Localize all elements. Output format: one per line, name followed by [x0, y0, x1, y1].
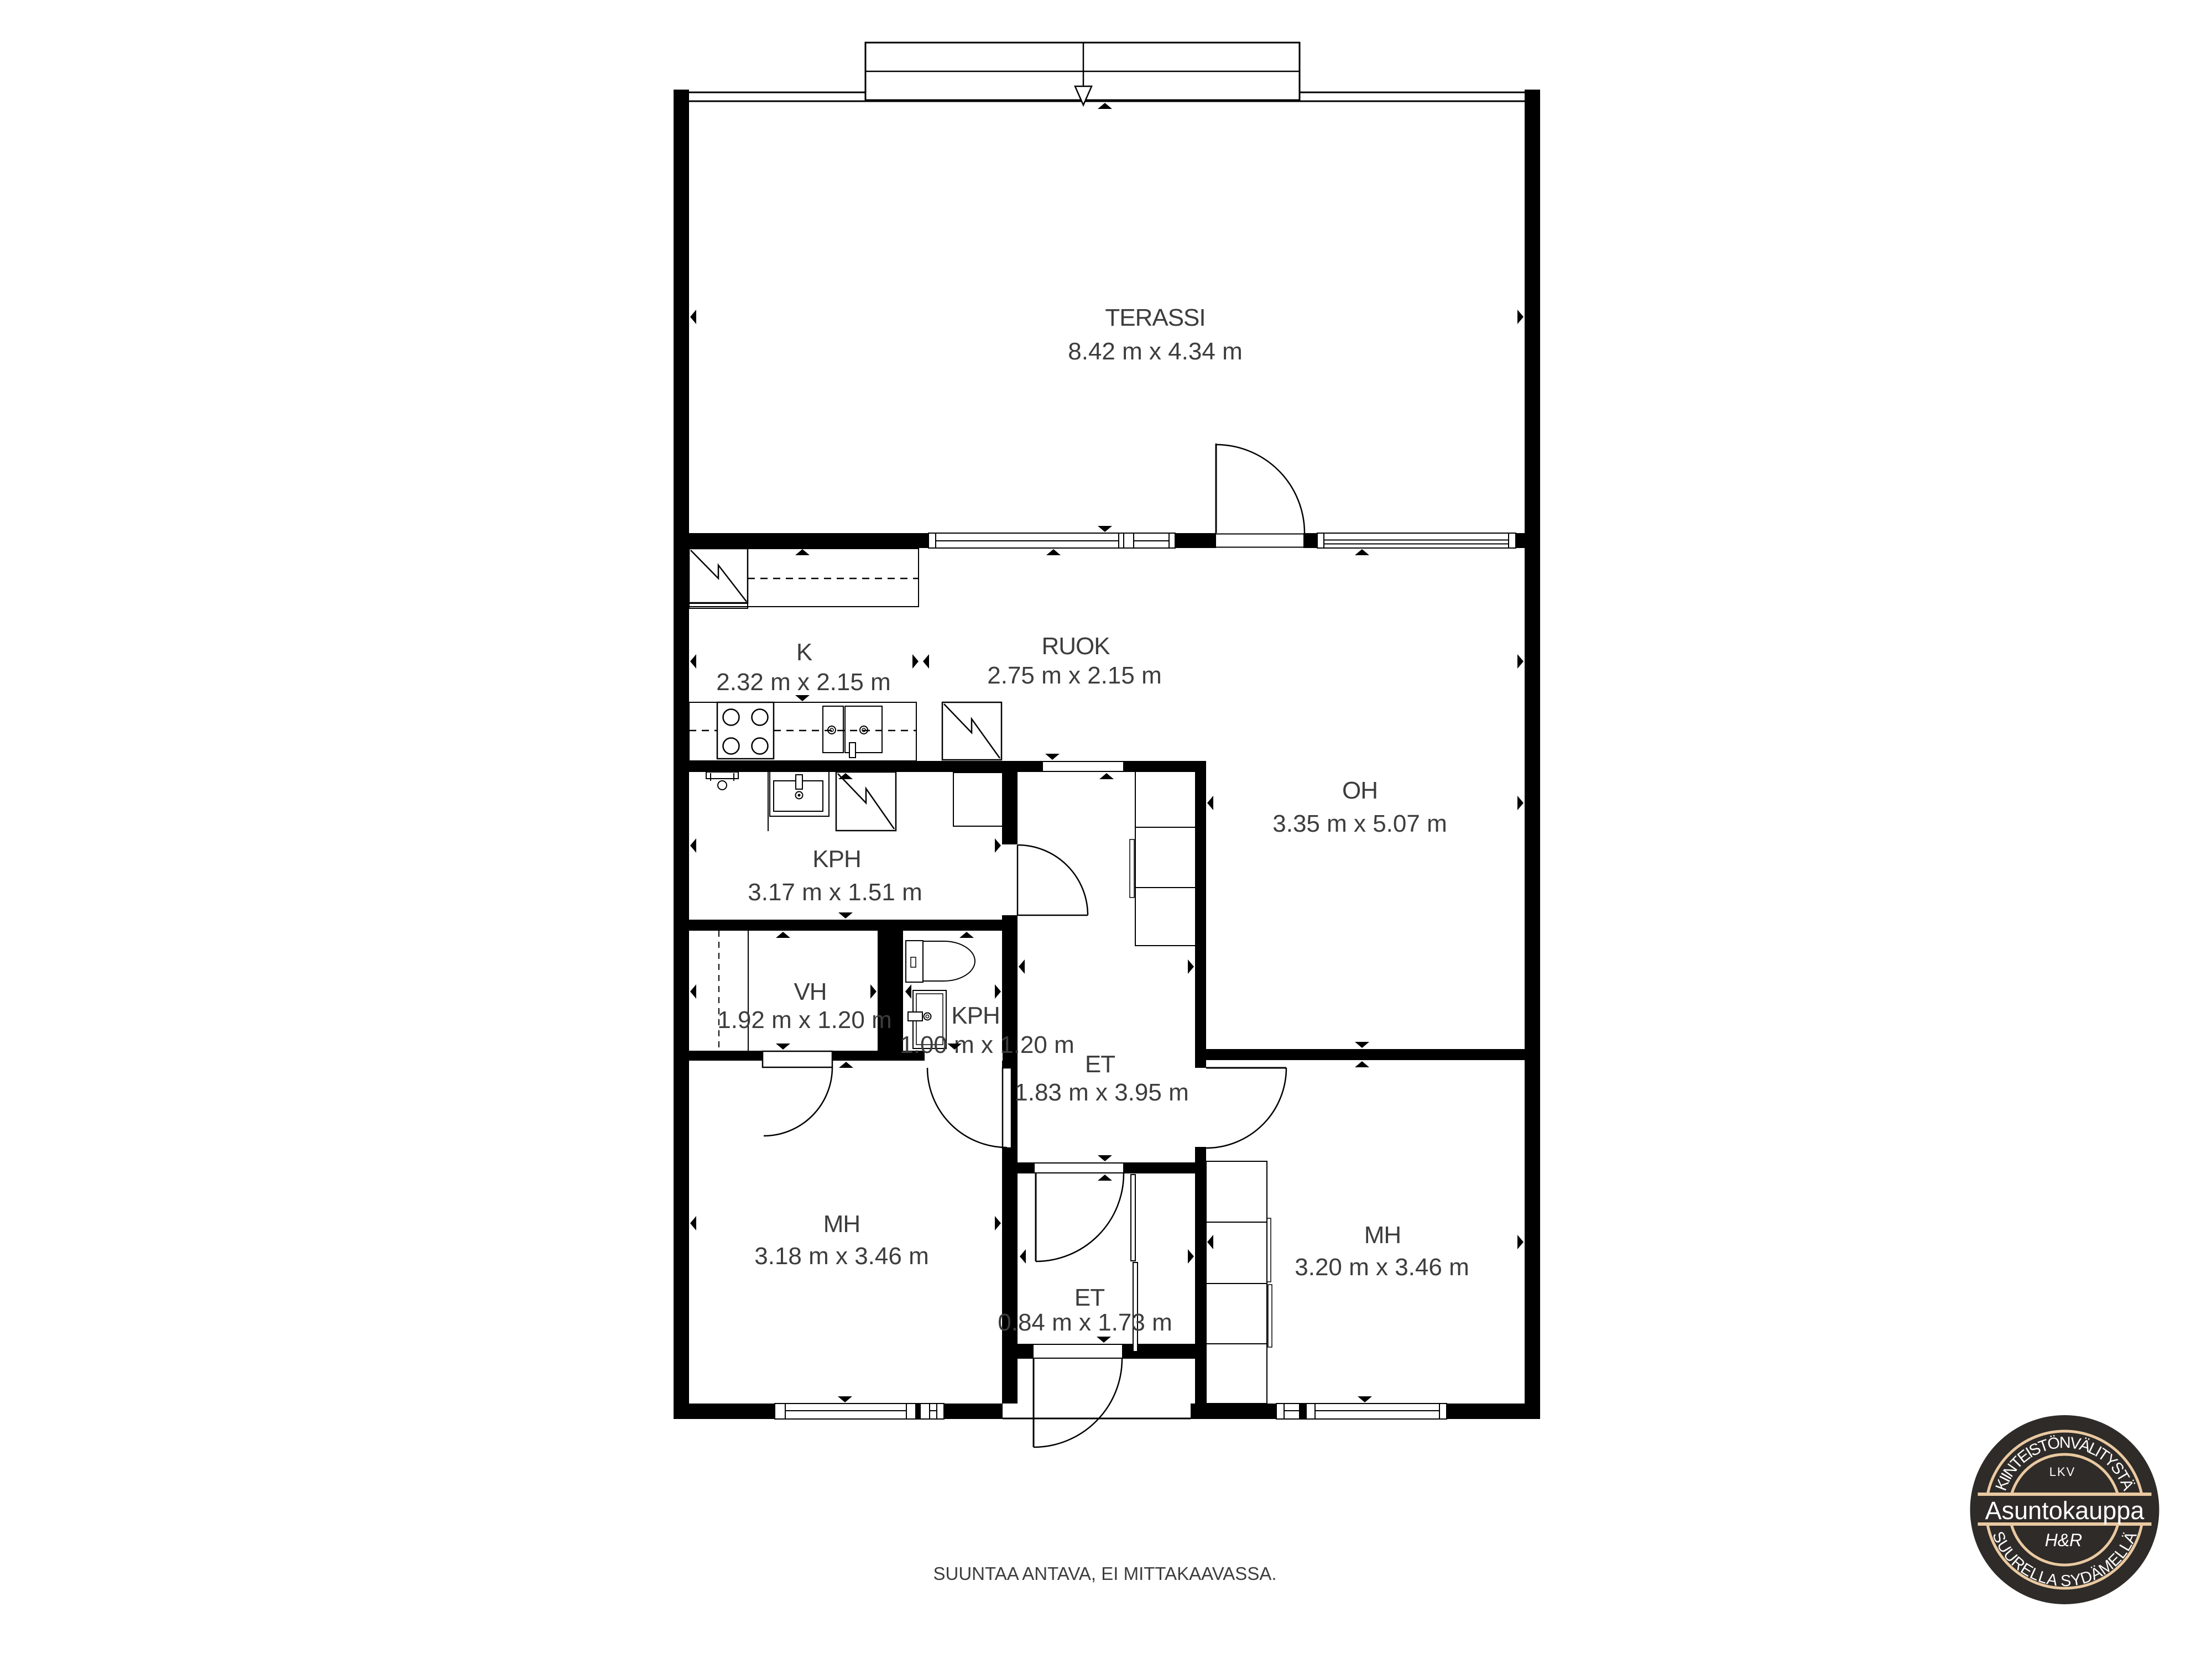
svg-text:3.18 m x 3.46 m: 3.18 m x 3.46 m [754, 1243, 928, 1270]
svg-text:3.35 m x 5.07 m: 3.35 m x 5.07 m [1272, 810, 1447, 837]
svg-text:SUUNTAA ANTAVA, EI MITTAKAAVAS: SUUNTAA ANTAVA, EI MITTAKAAVASSA. [933, 1563, 1276, 1584]
svg-text:TERASSI: TERASSI [1105, 304, 1205, 331]
svg-text:RUOK: RUOK [1041, 633, 1110, 660]
svg-text:3.17 m x 1.51 m: 3.17 m x 1.51 m [748, 879, 922, 906]
svg-text:8.42 m x 4.34 m: 8.42 m x 4.34 m [1068, 338, 1242, 365]
svg-text:ET: ET [1074, 1284, 1104, 1311]
svg-text:LKV: LKV [2049, 1465, 2076, 1479]
svg-text:ET: ET [1085, 1051, 1115, 1078]
svg-text:MH: MH [823, 1211, 860, 1238]
svg-text:1.92 m x 1.20 m: 1.92 m x 1.20 m [717, 1006, 891, 1034]
svg-text:3.20 m x 3.46 m: 3.20 m x 3.46 m [1295, 1254, 1469, 1281]
svg-text:VH: VH [794, 978, 826, 1005]
svg-text:0.84 m x 1.73 m: 0.84 m x 1.73 m [998, 1309, 1172, 1336]
svg-text:KPH: KPH [812, 846, 860, 873]
svg-text:Asuntokauppa: Asuntokauppa [1985, 1496, 2145, 1525]
svg-text:2.32 m x 2.15 m: 2.32 m x 2.15 m [716, 669, 890, 696]
svg-text:OH: OH [1342, 777, 1378, 804]
svg-text:2.75 m x 2.15 m: 2.75 m x 2.15 m [987, 662, 1161, 689]
svg-text:H&R: H&R [2045, 1530, 2083, 1550]
svg-text:1.83 m x 3.95 m: 1.83 m x 3.95 m [1014, 1079, 1188, 1106]
svg-text:MH: MH [1364, 1222, 1401, 1249]
svg-text:K: K [796, 639, 812, 666]
svg-text:KPH: KPH [951, 1002, 999, 1029]
svg-text:1.00 m x 1.20 m: 1.00 m x 1.20 m [900, 1031, 1074, 1058]
